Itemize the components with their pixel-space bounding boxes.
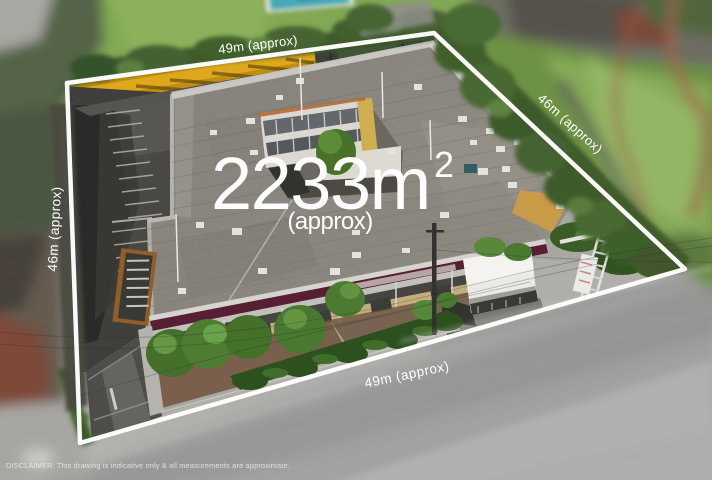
svg-text:(approx): (approx) [287,208,372,235]
svg-text:DISCLAIMER: This drawing is in: DISCLAIMER: This drawing is indicative o… [6,461,290,470]
svg-text:2: 2 [434,144,454,185]
